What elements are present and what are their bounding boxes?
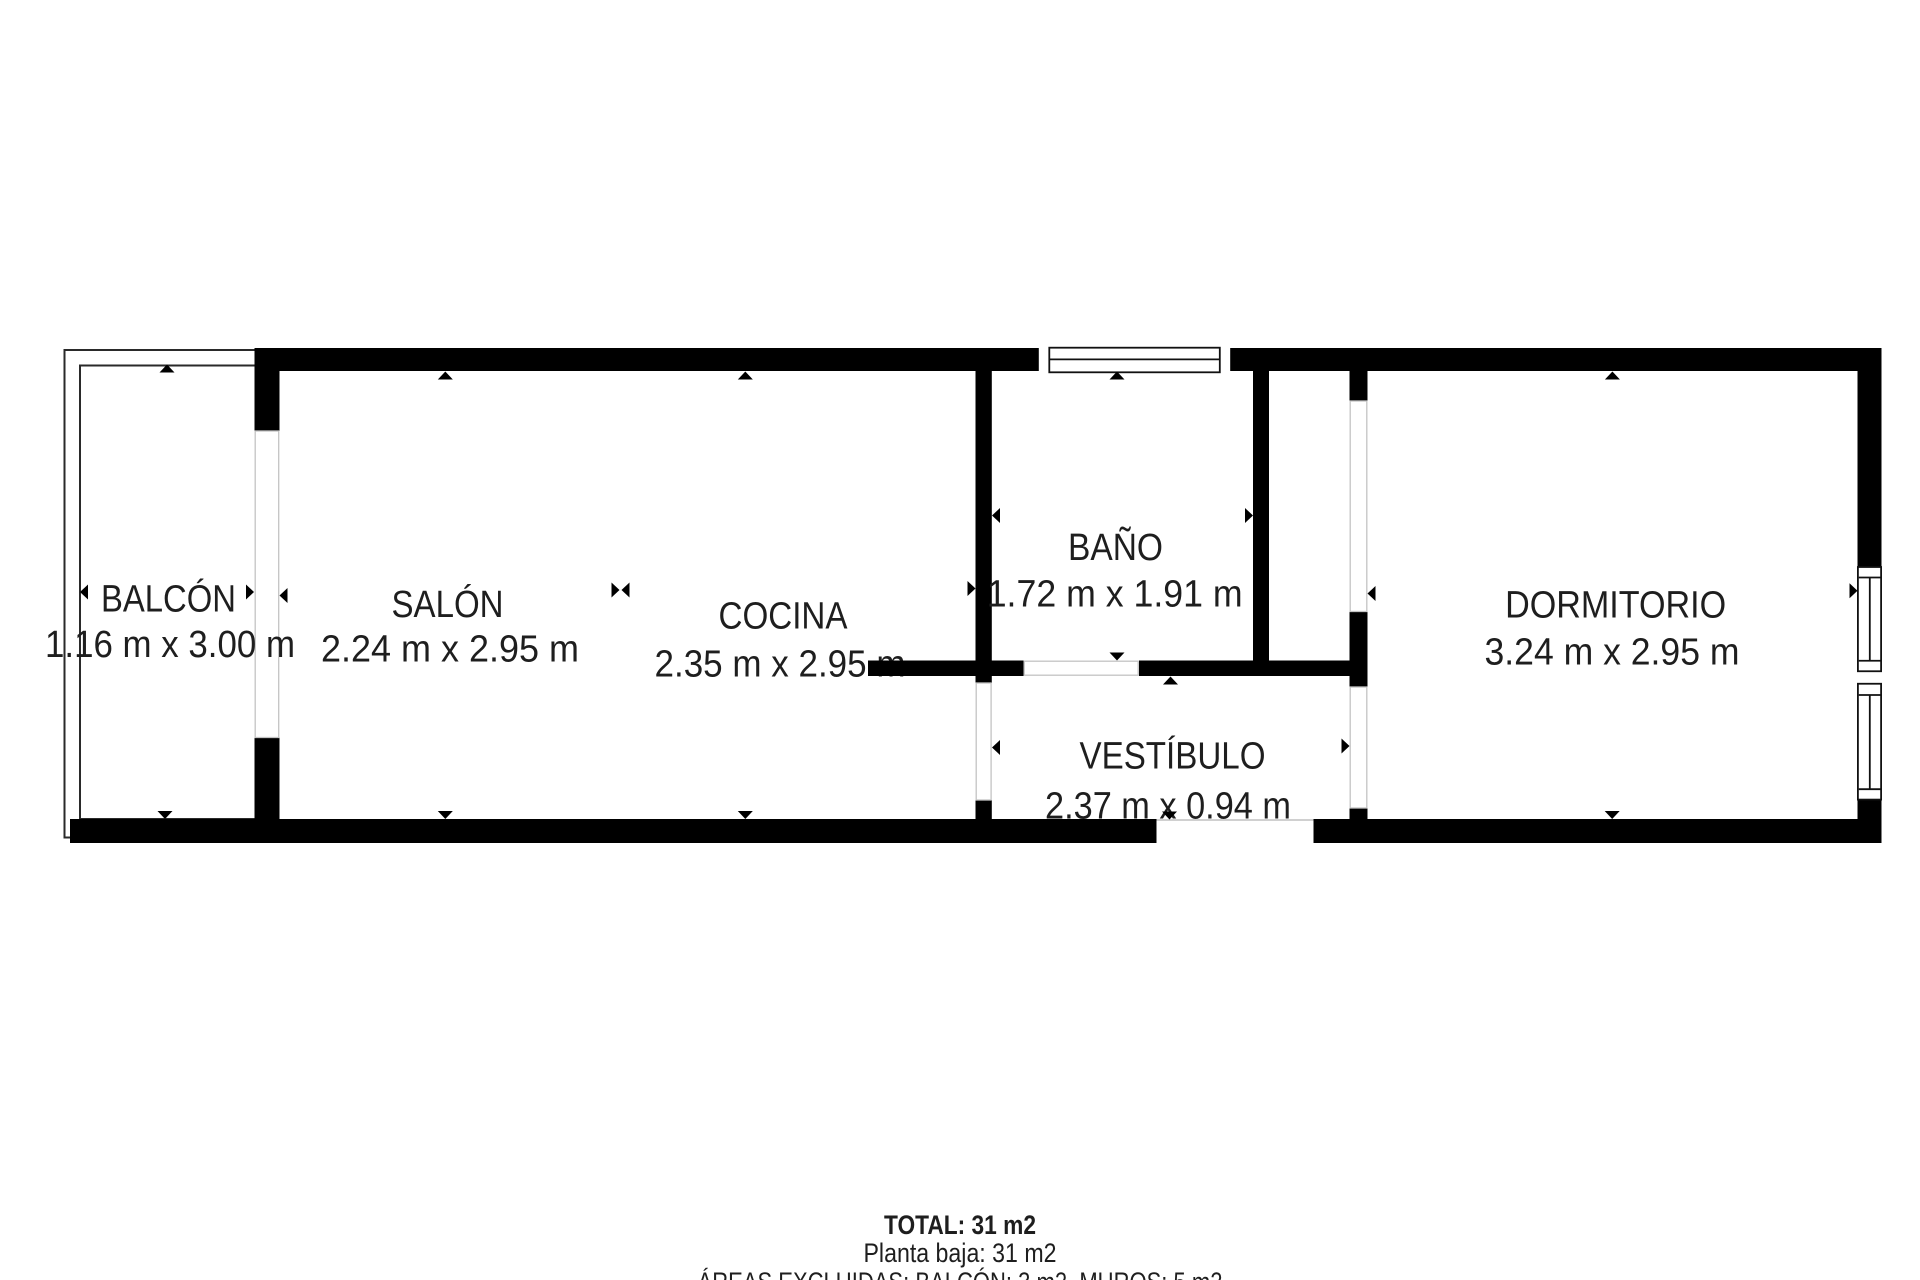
svg-text:3.24 m x 2.95 m: 3.24 m x 2.95 m (1485, 632, 1740, 674)
svg-text:TOTAL: 31 m2: TOTAL: 31 m2 (884, 1210, 1036, 1240)
svg-text:COCINA: COCINA (719, 595, 849, 637)
svg-text:BALCÓN: BALCÓN (101, 578, 236, 621)
svg-text:VESTÍBULO: VESTÍBULO (1080, 735, 1266, 778)
svg-text:2.35 m x 2.95 m: 2.35 m x 2.95 m (655, 644, 906, 686)
svg-text:SALÓN: SALÓN (392, 583, 504, 626)
svg-text:1.16 m x 3.00 m: 1.16 m x 3.00 m (45, 624, 295, 666)
svg-text:2.24 m x 2.95 m: 2.24 m x 2.95 m (321, 629, 579, 671)
svg-text:1.72 m x 1.91 m: 1.72 m x 1.91 m (987, 574, 1243, 616)
svg-text:2.37 m x 0.94 m: 2.37 m x 0.94 m (1045, 786, 1291, 828)
svg-text:BAÑO: BAÑO (1068, 526, 1163, 569)
svg-text:Planta baja: 31 m2: Planta baja: 31 m2 (864, 1238, 1057, 1268)
svg-text:ÁREAS EXCLUIDAS: BALCÓN: 3 m2,: ÁREAS EXCLUIDAS: BALCÓN: 3 m2, MUROS: 5 … (698, 1266, 1223, 1280)
svg-text:DORMITORIO: DORMITORIO (1505, 585, 1726, 627)
